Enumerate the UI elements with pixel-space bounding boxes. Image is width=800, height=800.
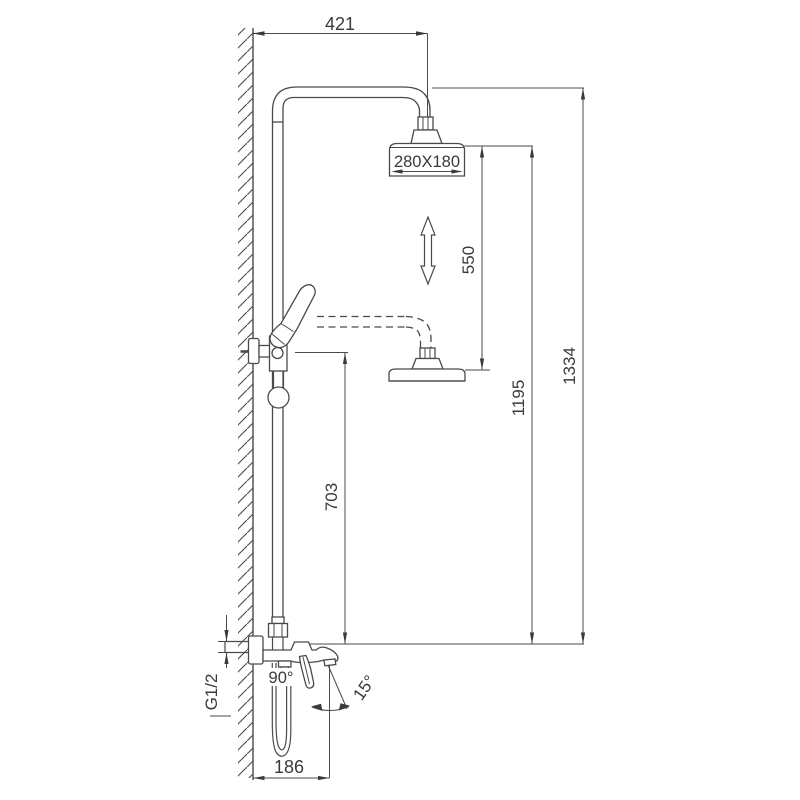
drawing-canvas: 421 280X180 [0,0,800,800]
spout-aerator [324,659,336,666]
technical-drawing: 421 280X180 [0,0,800,800]
dim-703-label: 703 [322,483,341,511]
background [0,0,800,800]
mixer-wall-flange [249,636,264,664]
dim-1334-label: 1334 [560,347,579,385]
lower-connector-flare [412,359,443,370]
lower-head-body [389,369,465,381]
pipe-nut [269,624,288,638]
rain-head-size-label: 280X180 [394,153,460,171]
dim-186-label: 186 [274,757,304,777]
pipe-ring [272,617,284,624]
slider-ball [268,387,289,408]
wall [238,28,253,780]
wall-hatching [238,28,253,778]
dim-g12-label: G1/2 [202,674,221,711]
wall-bracket-stem [259,346,270,358]
dim-550-label: 550 [459,246,478,274]
holder-knob [272,348,283,359]
head-connector-flare [411,130,442,144]
dim-421-label: 421 [325,14,355,34]
wall-bracket-flange [249,339,260,364]
dim-1195-label: 1195 [509,380,528,417]
angle-90-label: 90° [269,669,294,687]
hose-nipple [279,661,292,667]
head-connector-nut [418,117,433,130]
lower-connector-nut [420,348,435,359]
